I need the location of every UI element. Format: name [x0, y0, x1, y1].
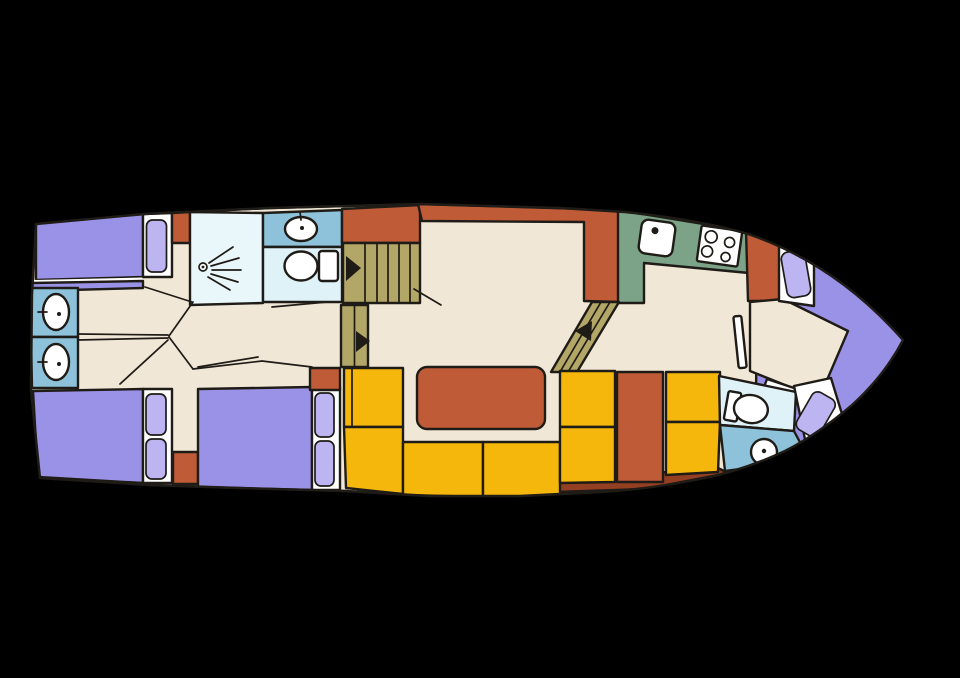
dinette-seat: [344, 427, 403, 494]
cabin-divider-wall: [78, 334, 168, 335]
saloon-table: [417, 367, 545, 429]
drain-1: [57, 312, 61, 316]
dinette-seat: [666, 422, 720, 475]
pillow: [315, 441, 334, 486]
sink-drain-dot: [300, 226, 304, 230]
aft-toilet-tank: [319, 251, 338, 281]
cabinet-block-aft: [172, 212, 190, 243]
dinette-seat: [666, 372, 720, 422]
galley-sink: [638, 219, 676, 257]
shower-room-floor: [190, 212, 263, 305]
aft-toilet-bowl: [285, 252, 318, 281]
stair-landing-block: [342, 205, 420, 243]
cabinet-column: [617, 372, 663, 482]
cabinet-block-corridor: [310, 368, 340, 390]
aft-stbd-bed-1: [33, 389, 143, 483]
dinette-seat: [560, 371, 615, 427]
boat-floorplan-canvas: [0, 0, 960, 678]
drain-dot: [762, 449, 766, 453]
cabinet-block-between-beds: [173, 452, 198, 484]
pillow: [146, 394, 166, 435]
drain-2: [57, 362, 61, 366]
sink-faucet-tick: [300, 212, 301, 220]
aft-stbd-bed-2: [198, 387, 312, 490]
dinette-seat: [483, 442, 560, 497]
dinette-seat: [560, 427, 615, 483]
pillow: [146, 439, 166, 479]
dinette-seat: [403, 442, 483, 497]
pillow: [315, 393, 334, 437]
aft-port-bed: [36, 214, 143, 280]
aft-port-pillow: [147, 220, 167, 272]
